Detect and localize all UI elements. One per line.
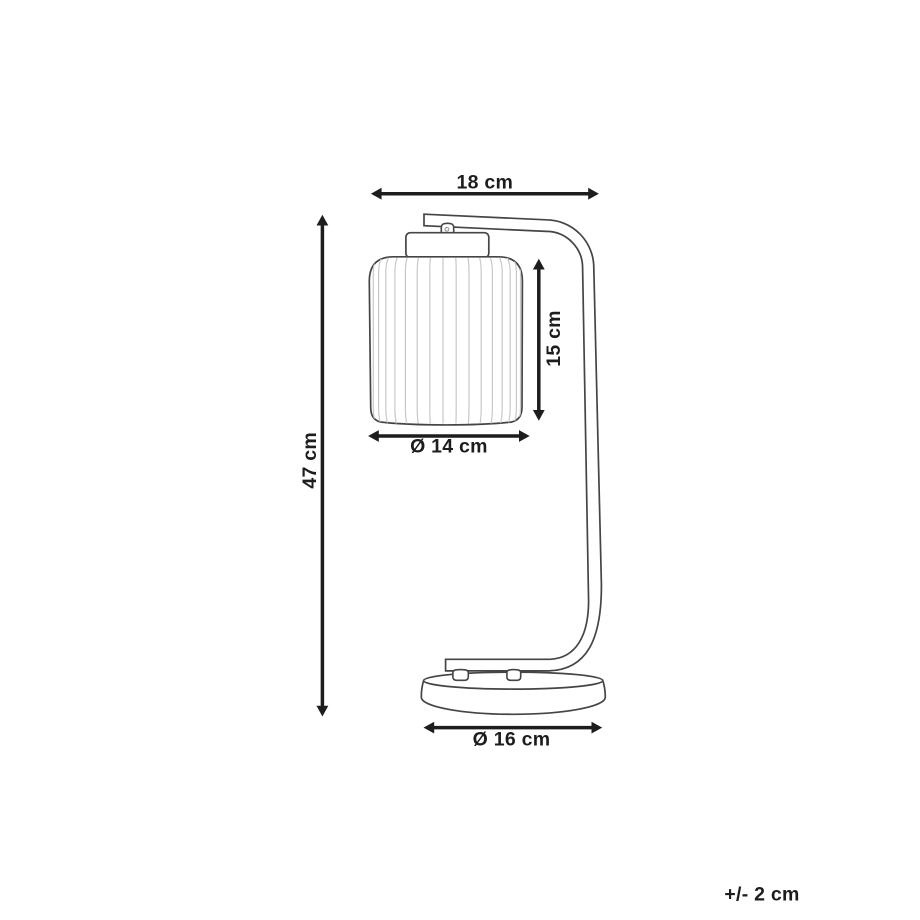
svg-text:18 cm: 18 cm: [457, 172, 514, 194]
svg-text:+/- 2 cm: +/- 2 cm: [724, 883, 799, 905]
svg-text:Ø 16 cm: Ø 16 cm: [473, 729, 551, 751]
svg-text:47 cm: 47 cm: [299, 432, 321, 489]
svg-text:15 cm: 15 cm: [543, 310, 565, 367]
svg-text:Ø 14 cm: Ø 14 cm: [410, 435, 488, 457]
